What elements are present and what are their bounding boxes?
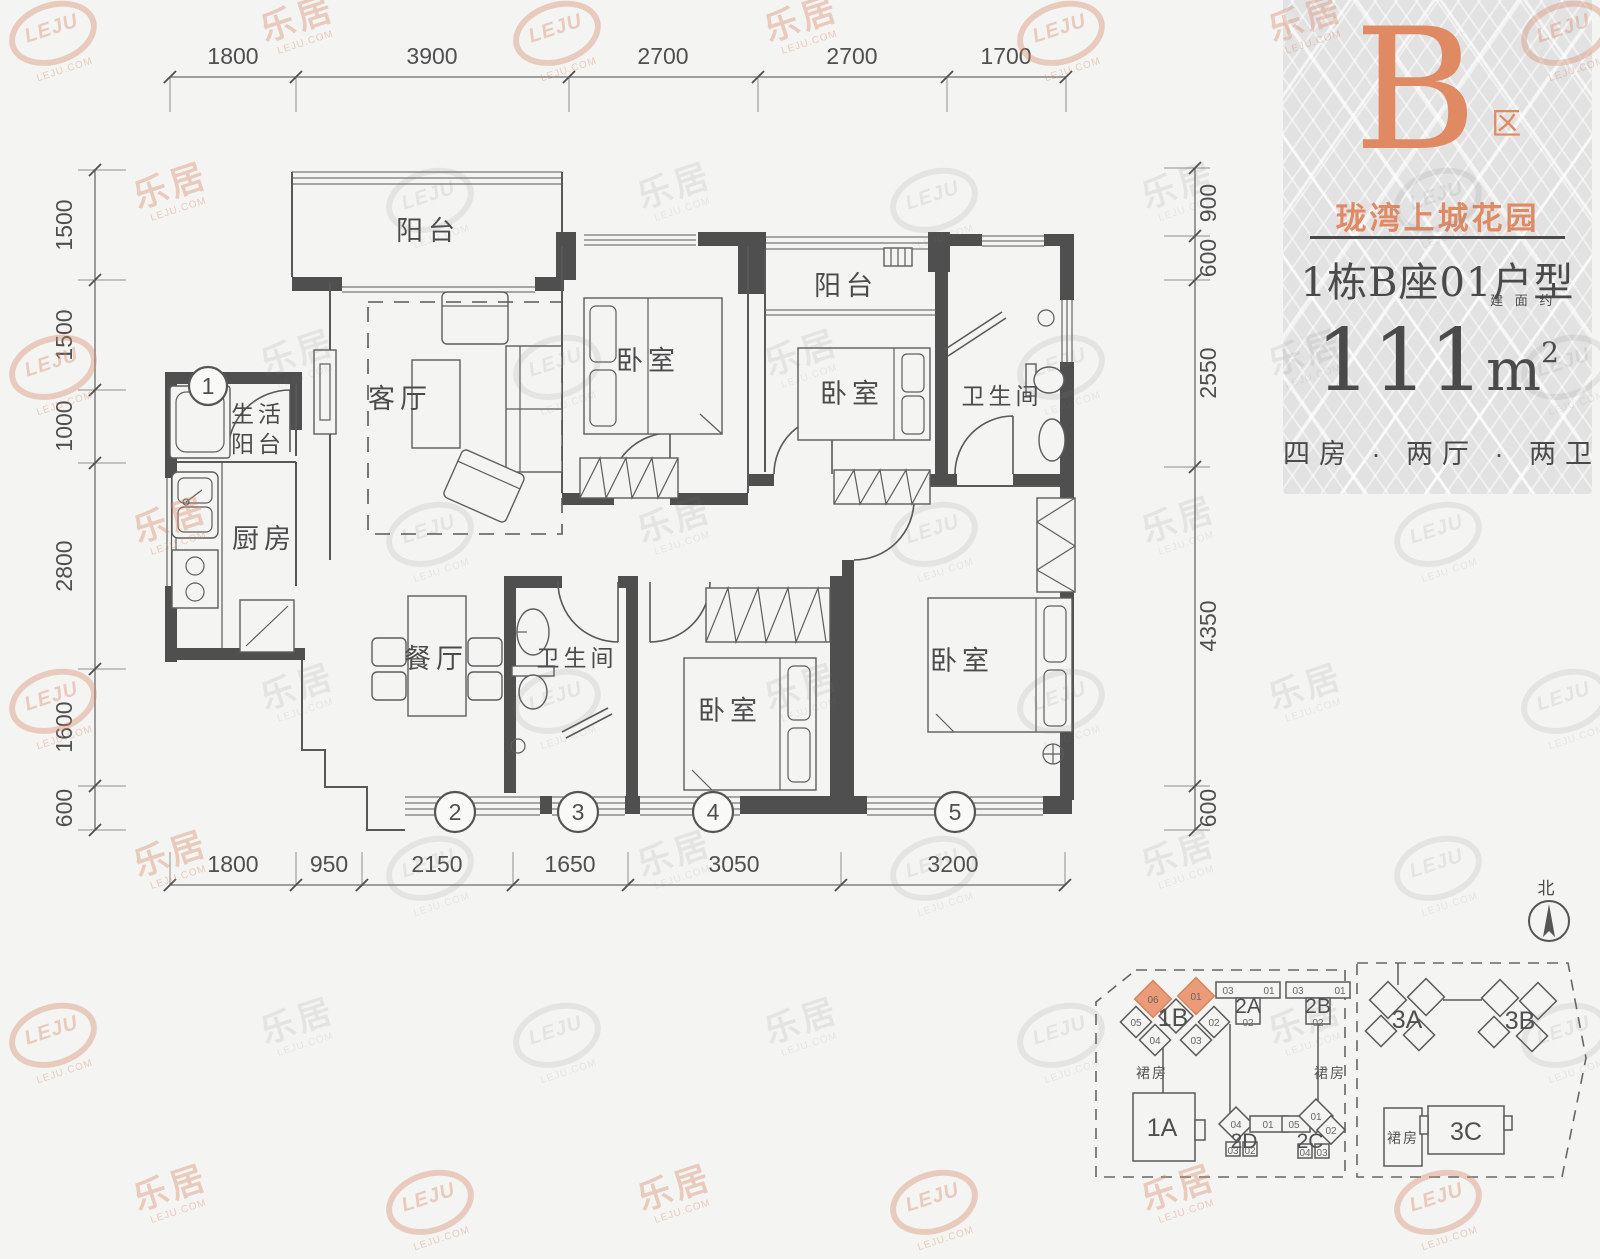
room-label-service-2: 阳台 — [231, 431, 285, 457]
room-label-balcony-top: 阳台 — [396, 216, 460, 246]
dim-label: 2150 — [411, 851, 462, 877]
unit-04: 04 — [1149, 1036, 1161, 1047]
building-2a: 2A — [1235, 995, 1261, 1018]
area-figure: 111建 面 约m2 — [1283, 318, 1592, 404]
zone-suffix: 区 — [1491, 108, 1521, 141]
dim-label: 3050 — [708, 851, 759, 877]
dim-label: 1700 — [980, 43, 1031, 69]
axis-marker-4: 4 — [707, 799, 720, 825]
dimension-right: 900 600 2550 4350 600 — [1164, 162, 1221, 836]
room-label-dining: 餐厅 — [404, 644, 468, 674]
dim-label: 2700 — [826, 43, 877, 69]
zone-heading: B区 — [1283, 6, 1592, 174]
dimension-left: 1500 1500 1000 2800 1600 600 — [51, 164, 126, 836]
dim-label: 1800 — [207, 43, 258, 69]
unit-label: 01 — [1262, 1120, 1274, 1131]
room-label-bath2: 卫生间 — [537, 645, 618, 671]
dim-label: 4350 — [1195, 600, 1221, 651]
unit-label: 03 — [1292, 986, 1304, 997]
room-label-living: 客厅 — [368, 384, 432, 414]
dim-label: 600 — [51, 789, 77, 827]
unit-label: 02 — [1325, 1126, 1337, 1137]
north-arrow: 北 — [1529, 879, 1569, 941]
podium-label: 裙房 — [1314, 1065, 1346, 1081]
dim-label: 1650 — [544, 851, 595, 877]
dimension-bottom: 1800 950 2150 1650 3050 3200 — [164, 851, 1071, 891]
building-3c: 3C — [1450, 1118, 1482, 1146]
unit-label: 02 — [1242, 1018, 1254, 1029]
axis-marker-3: 3 — [572, 799, 585, 825]
dim-label: 1600 — [51, 701, 77, 752]
project-name: 珑湾上城花园 — [1283, 193, 1592, 238]
building-1b: 1B — [1158, 1004, 1189, 1032]
building-3b: 3B — [1505, 1007, 1536, 1035]
room-label-bath1: 卫生间 — [962, 383, 1043, 409]
divider — [1310, 236, 1565, 239]
unit-label: 01 — [1334, 986, 1346, 997]
dim-label: 900 — [1195, 184, 1221, 222]
building-3a: 3A — [1392, 1006, 1423, 1034]
dim-label: 950 — [310, 851, 348, 877]
area-sup: 2 — [1541, 336, 1559, 369]
dim-label: 600 — [1195, 239, 1221, 277]
dim-label: 2800 — [51, 540, 77, 591]
dim-label: 3900 — [406, 43, 457, 69]
north-label: 北 — [1538, 879, 1555, 898]
dimension-top: 1800 3900 2700 2700 1700 — [164, 43, 1072, 112]
room-label-service-1: 生活 — [231, 401, 285, 427]
room-label-kitchen: 厨房 — [232, 524, 296, 554]
area-value: 111 — [1316, 311, 1486, 411]
zone-letter: B — [1354, 0, 1477, 188]
site-plan: 06 01 05 04 03 02 1B 03 01 2A 02 03 01 2… — [1096, 963, 1586, 1177]
podium-label: 裙房 — [1136, 1065, 1168, 1081]
unit-label: 01 — [1310, 1112, 1322, 1123]
floorplan-page: 1800 3900 2700 2700 1700 1800 950 2150 1… — [0, 0, 1600, 1200]
area-unit: m — [1486, 336, 1541, 404]
info-panel: B区 珑湾上城花园 1栋B座01户型 111建 面 约m2 四房 · 两厅 · … — [1283, 0, 1592, 494]
building-2c: 2C — [1297, 1130, 1324, 1153]
building-1a: 1A — [1147, 1114, 1178, 1142]
dim-label: 1800 — [207, 851, 258, 877]
podium-label: 裙房 — [1387, 1130, 1419, 1146]
axis-marker-1: 1 — [202, 373, 215, 399]
dim-label: 2550 — [1195, 347, 1221, 398]
room-label-bedroom4: 卧室 — [930, 646, 994, 676]
unit-02: 02 — [1208, 1018, 1220, 1029]
dim-label: 2700 — [637, 43, 688, 69]
dim-label: 600 — [1195, 789, 1221, 827]
room-label-balcony2: 阳台 — [814, 271, 878, 301]
unit-03: 03 — [1190, 1036, 1202, 1047]
layout-description: 四房 · 两厅 · 两卫 — [1283, 432, 1592, 471]
building-2d: 2D — [1231, 1130, 1258, 1153]
room-label-bedroom2: 卧室 — [820, 379, 884, 409]
dim-label: 1000 — [51, 400, 77, 451]
axis-marker-2: 2 — [449, 799, 462, 825]
room-label-bedroom1: 卧室 — [616, 346, 680, 376]
dim-label: 1500 — [51, 309, 77, 360]
dim-label: 3200 — [927, 851, 978, 877]
room-label-bedroom3: 卧室 — [698, 696, 762, 726]
axis-marker-5: 5 — [949, 799, 962, 825]
unit-05: 05 — [1130, 1018, 1142, 1029]
unit-label: 03 — [1222, 986, 1234, 997]
unit-01: 01 — [1190, 992, 1202, 1003]
unit-label: 01 — [1263, 986, 1275, 997]
building-2b: 2B — [1305, 995, 1331, 1018]
dim-label: 1500 — [51, 199, 77, 250]
unit-label: 02 — [1312, 1018, 1324, 1029]
area-note: 建 面 约 — [1490, 290, 1556, 309]
